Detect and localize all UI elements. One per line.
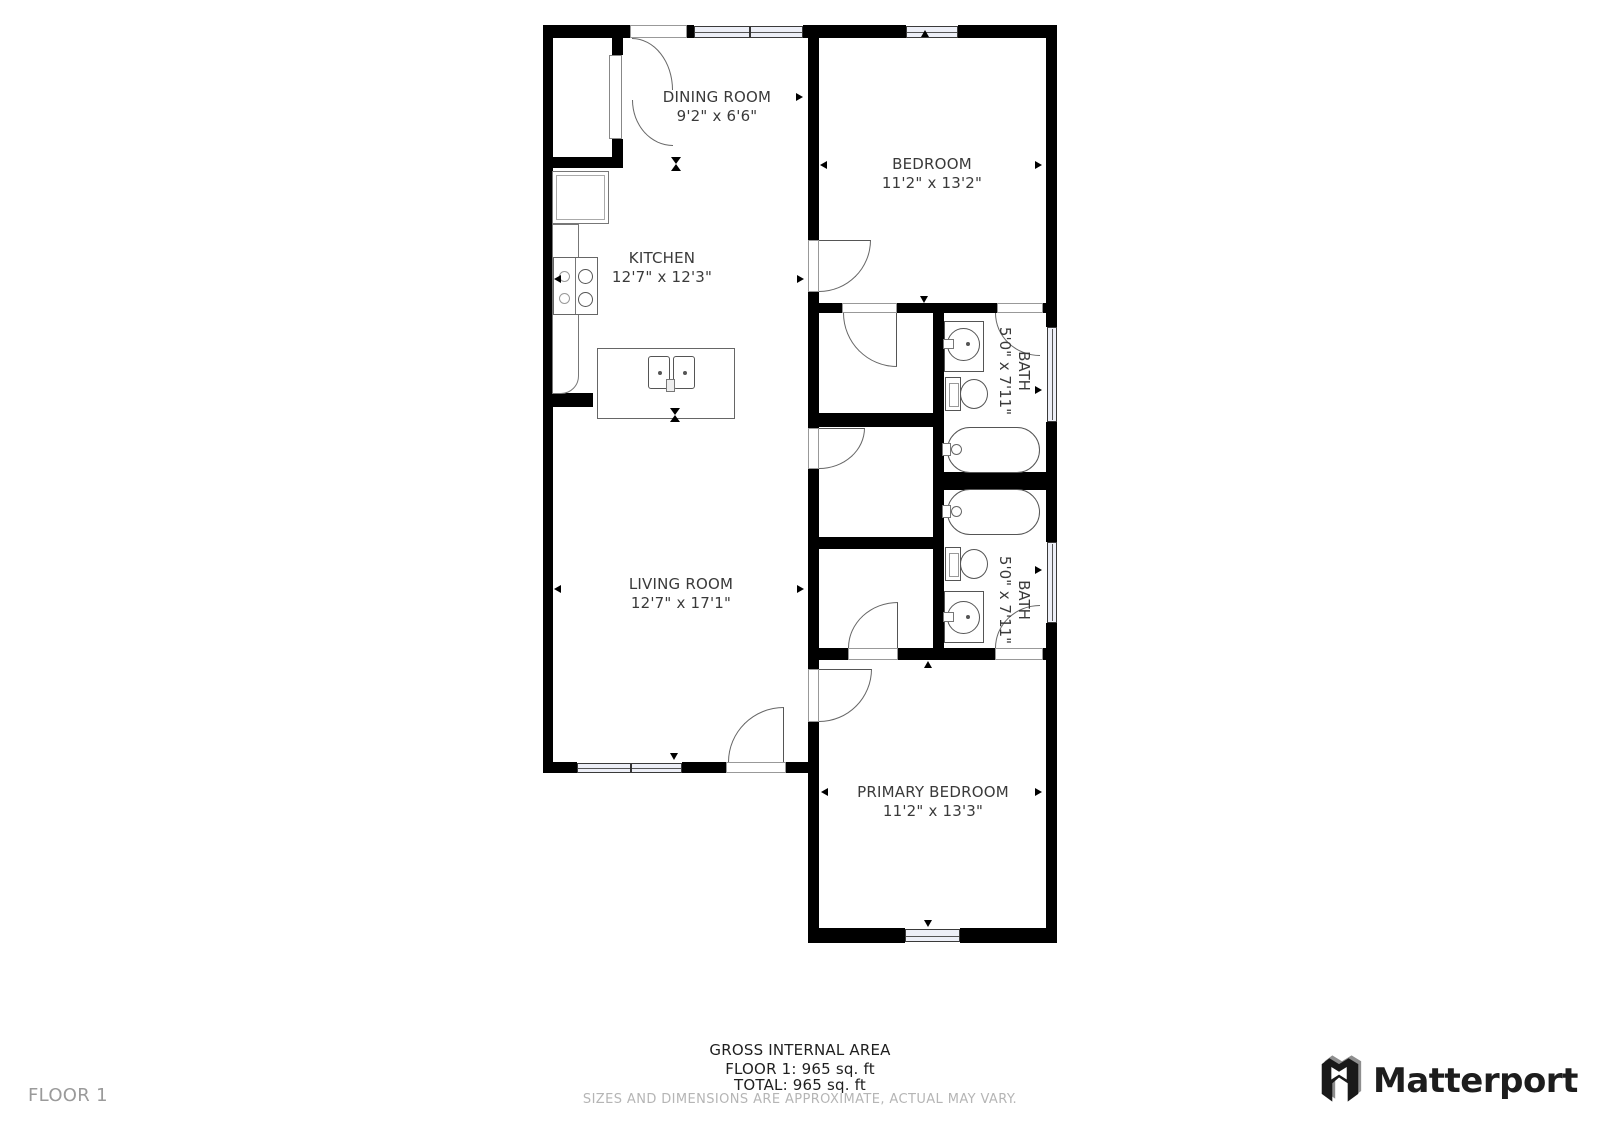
room-name: BEDROOM (822, 155, 1042, 174)
window (905, 929, 960, 942)
door-opening (997, 303, 1043, 313)
room-dims: 12'7" x 12'3" (552, 268, 772, 287)
floor-label: FLOOR 1 (28, 1085, 108, 1106)
sink-basin (673, 356, 695, 389)
door-swing (819, 428, 865, 469)
room-name: BATH (1014, 550, 1033, 650)
wall (612, 38, 623, 55)
wall (543, 393, 593, 407)
wall (808, 413, 944, 427)
wall (808, 722, 819, 943)
door-opening (808, 428, 819, 469)
wall (808, 303, 842, 313)
tub-faucet-icon (942, 443, 951, 456)
wall (1043, 648, 1057, 660)
measure-arrow (670, 753, 678, 760)
matterport-logo-icon (1315, 1054, 1365, 1107)
toilet-icon (945, 377, 961, 411)
room-label-bath-2: BATH 5'0" x 7'11" (983, 550, 1033, 650)
measure-arrow (920, 296, 928, 303)
tub-faucet-icon (942, 505, 951, 518)
measure-arrow (797, 585, 804, 593)
faucet-icon (943, 339, 954, 349)
room-name: LIVING ROOM (571, 575, 791, 594)
window (1047, 542, 1057, 623)
door-opening (848, 648, 898, 660)
wall (786, 762, 819, 773)
room-label-primary-bedroom: PRIMARY BEDROOM 11'2" x 13'3" (783, 783, 1083, 821)
door-swing (843, 313, 897, 367)
door-swing (848, 602, 898, 648)
room-dims: 11'2" x 13'3" (783, 802, 1083, 821)
drain-dot (966, 615, 970, 619)
room-label-bath-1: BATH 5'0" x 7'11" (983, 321, 1033, 421)
window (577, 763, 682, 773)
room-name: DINING ROOM (607, 88, 827, 107)
window (1047, 327, 1057, 422)
room-label-bedroom: BEDROOM 11'2" x 13'2" (822, 155, 1042, 193)
wall (808, 928, 905, 943)
brand-name: Matterport (1373, 1061, 1578, 1101)
door-swing (819, 669, 872, 722)
brand-logo: Matterport (1315, 1054, 1578, 1107)
wall (808, 537, 944, 549)
measure-arrow (1035, 566, 1042, 574)
wall (933, 472, 1057, 490)
tub-knob (951, 444, 962, 455)
door-swing (632, 38, 673, 90)
room-dims: 11'2" x 13'2" (822, 174, 1042, 193)
door-opening (808, 240, 819, 292)
door-opening (842, 303, 897, 313)
wall (682, 762, 726, 773)
door-swing (728, 707, 784, 762)
door-opening (630, 25, 687, 38)
wall (1043, 303, 1057, 313)
wall (898, 648, 995, 660)
room-name: BATH (1014, 321, 1033, 421)
wall (958, 25, 1057, 38)
wall (960, 928, 1057, 943)
room-dims: 12'7" x 17'1" (571, 594, 791, 613)
room-dims: 9'2" x 6'6" (607, 107, 827, 126)
door-opening (726, 762, 786, 773)
door-opening (808, 669, 819, 722)
room-label-kitchen: KITCHEN 12'7" x 12'3" (552, 249, 772, 287)
wall (808, 469, 819, 669)
room-name: PRIMARY BEDROOM (783, 783, 1083, 802)
room-dims: 5'0" x 7'11" (995, 550, 1014, 650)
floor-plan-page: DINING ROOM 9'2" x 6'6" BEDROOM 11'2" x … (0, 0, 1600, 1131)
window (694, 26, 803, 38)
wall (1046, 25, 1057, 327)
window (906, 26, 958, 38)
measure-arrow (924, 661, 932, 668)
faucet-icon (666, 379, 675, 392)
measure-arrow (924, 920, 932, 927)
toilet-icon (945, 547, 961, 581)
wall (808, 25, 819, 240)
drain-dot (966, 342, 970, 346)
faucet-icon (943, 612, 954, 622)
measure-arrow (1035, 386, 1042, 394)
measure-arrow (921, 30, 929, 37)
room-name: KITCHEN (552, 249, 772, 268)
measure-arrow (554, 585, 561, 593)
room-label-dining: DINING ROOM 9'2" x 6'6" (607, 88, 827, 126)
measure-arrow (797, 275, 804, 283)
door-swing (819, 240, 871, 292)
wall (543, 25, 630, 38)
room-dims: 5'0" x 7'11" (995, 321, 1014, 421)
fridge-icon (552, 171, 609, 224)
wall (897, 303, 997, 313)
tub-knob (951, 506, 962, 517)
wall (687, 25, 694, 38)
wall (808, 648, 848, 660)
wall (543, 762, 577, 773)
flow-marker (670, 408, 680, 422)
wall (612, 139, 623, 157)
flow-marker (671, 157, 681, 171)
wall (543, 157, 623, 168)
room-label-living: LIVING ROOM 12'7" x 17'1" (571, 575, 791, 613)
